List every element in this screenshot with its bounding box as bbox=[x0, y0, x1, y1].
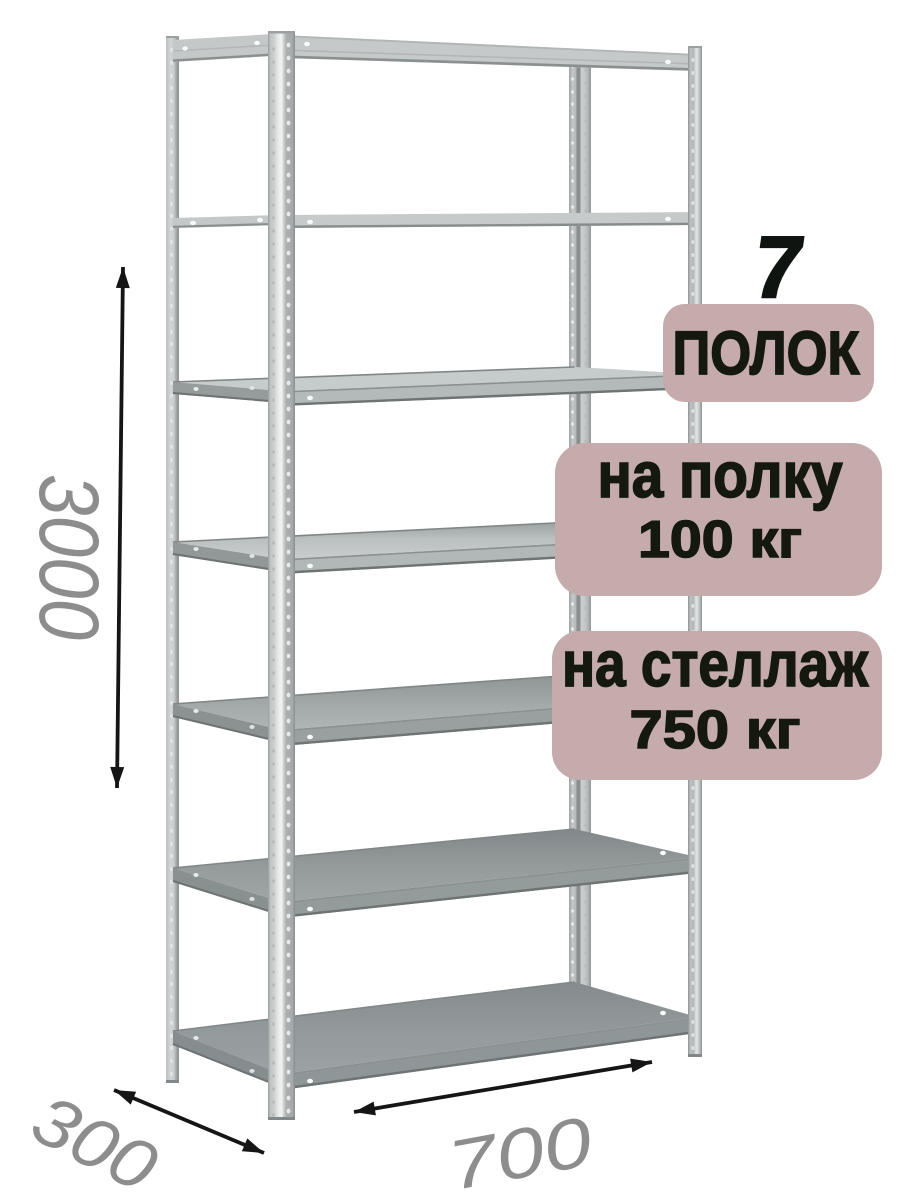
svg-text:300: 300 bbox=[20, 1079, 170, 1200]
svg-text:750 кг: 750 кг bbox=[630, 700, 801, 760]
svg-text:на стеллаж: на стеллаж bbox=[562, 628, 869, 700]
svg-text:3000: 3000 bbox=[22, 474, 116, 640]
svg-text:100 кг: 100 кг bbox=[638, 511, 802, 569]
svg-text:ПОЛОК: ПОЛОК bbox=[673, 319, 861, 387]
svg-text:700: 700 bbox=[442, 1102, 598, 1200]
svg-text:7: 7 bbox=[748, 218, 810, 316]
svg-text:на полку: на полку bbox=[598, 439, 843, 511]
